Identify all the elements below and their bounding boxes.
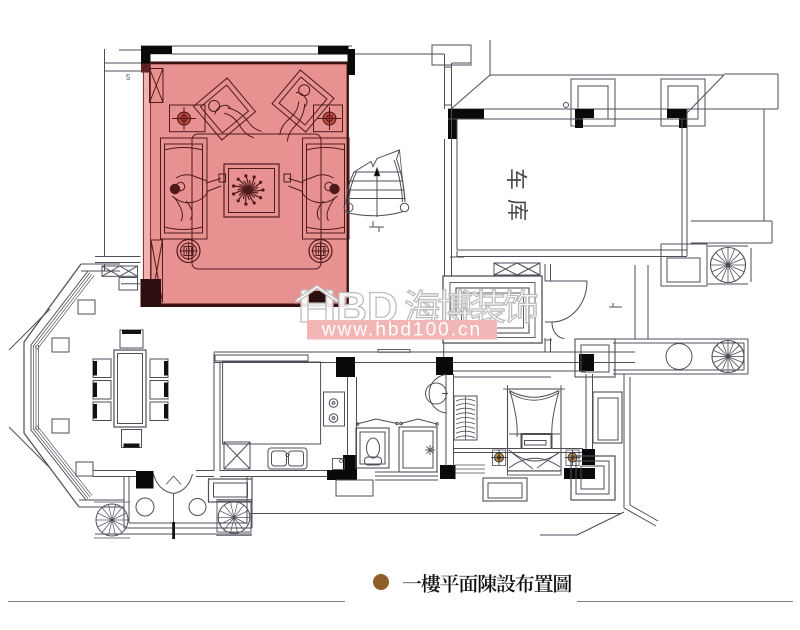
svg-text:www.hbd100.cn: www.hbd100.cn: [321, 320, 482, 341]
svg-text:5: 5: [126, 73, 131, 82]
